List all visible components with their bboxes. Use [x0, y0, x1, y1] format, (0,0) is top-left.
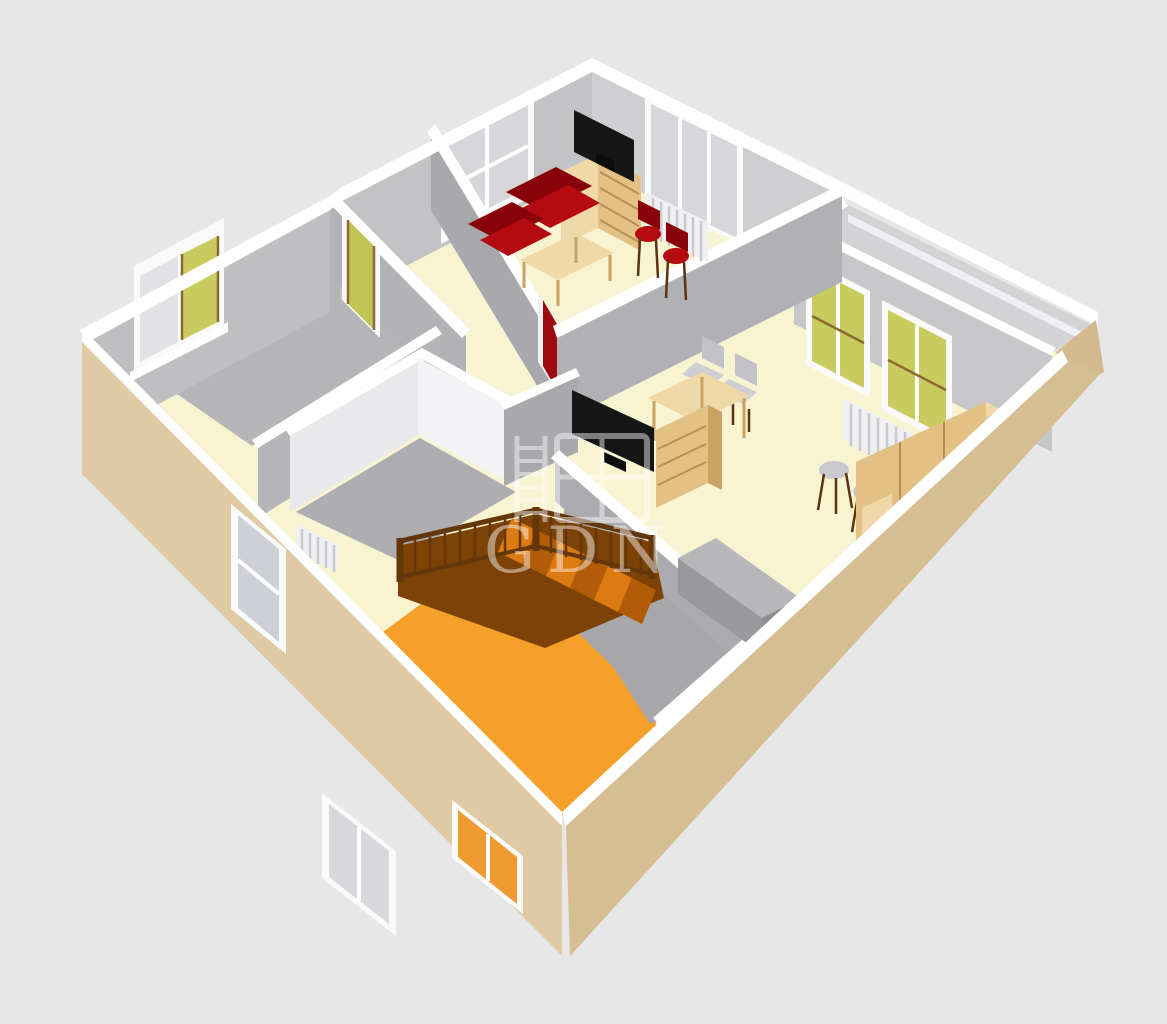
dresser-side: [708, 405, 722, 490]
watermark-text: GDN: [484, 514, 678, 588]
floorplan-render: GDN: [0, 0, 1167, 1024]
window-pane-green: [182, 236, 218, 340]
floorplan-3d-scene: GDN: [0, 0, 1167, 1024]
